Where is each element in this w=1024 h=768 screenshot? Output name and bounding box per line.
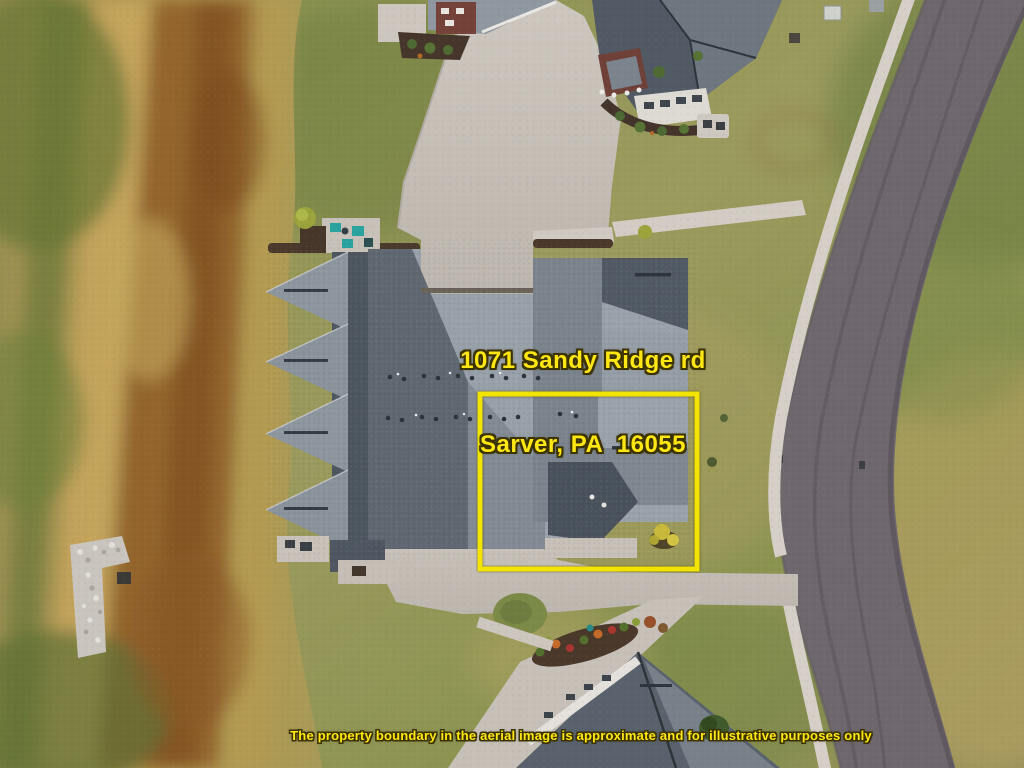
photo-grain [0, 0, 1024, 768]
aerial-scene [0, 0, 1024, 768]
aerial-photo: 1071 Sandy Ridge rd Sarver, PA 16055 The… [0, 0, 1024, 768]
